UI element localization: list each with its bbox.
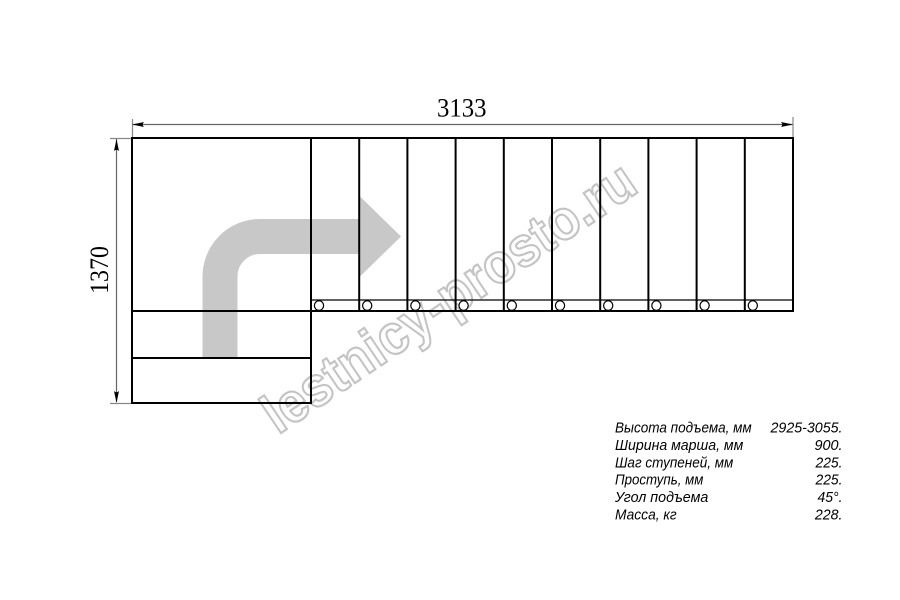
svg-text:Ширина марша, мм: Ширина марша, мм <box>615 437 743 454</box>
svg-text:225.: 225. <box>815 454 843 471</box>
svg-text:Масса, кг: Масса, кг <box>615 506 677 523</box>
svg-text:2925-3055.: 2925-3055. <box>770 420 843 437</box>
svg-text:Проступь, мм: Проступь, мм <box>615 472 703 489</box>
svg-text:Высота подъема, мм: Высота подъема, мм <box>615 420 752 437</box>
svg-text:Угол подъема: Угол подъема <box>614 489 708 506</box>
svg-text:225.: 225. <box>815 472 843 489</box>
svg-text:228.: 228. <box>814 506 843 523</box>
svg-text:45°.: 45°. <box>818 489 843 506</box>
svg-text:Шаг ступеней, мм: Шаг ступеней, мм <box>615 454 733 471</box>
svg-text:900.: 900. <box>815 437 843 454</box>
svg-text:3133: 3133 <box>437 93 487 123</box>
svg-text:1370: 1370 <box>84 246 114 294</box>
